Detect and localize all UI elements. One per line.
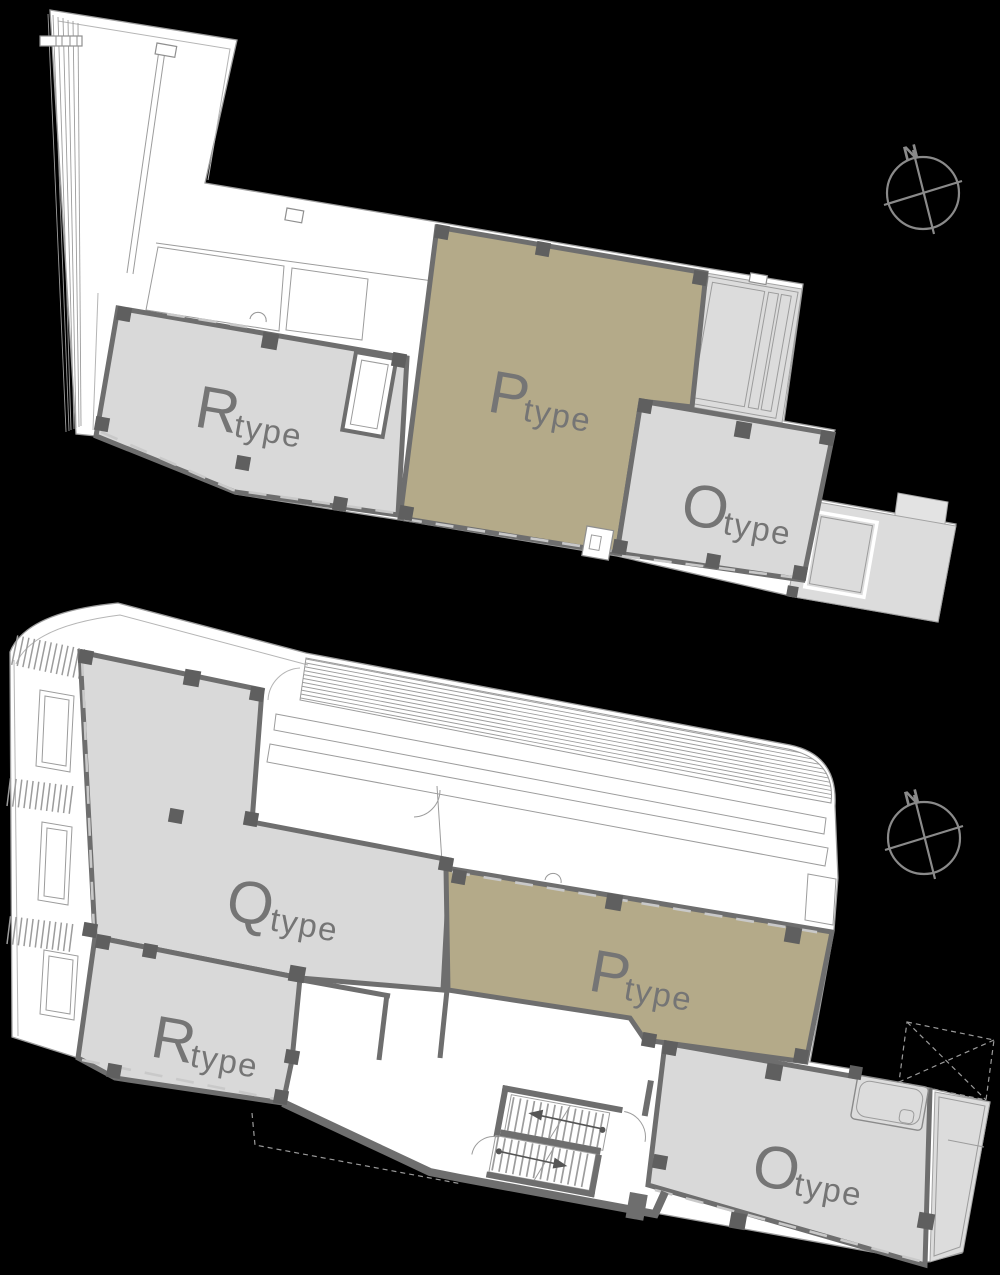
- lower-floor-plan: Q type R type P type O type N: [8, 603, 994, 1265]
- compass-icon: N: [884, 140, 962, 234]
- floorplan-canvas: R type P type O type N: [0, 0, 1000, 1275]
- upper-floor-plan: R type P type O type N: [40, 10, 962, 622]
- vent-box: [40, 36, 82, 46]
- floorplan-drawing: R type P type O type N: [0, 0, 1000, 1275]
- upper-entry-alcove: [582, 526, 614, 560]
- compass-icon: N: [885, 785, 963, 879]
- lower-right-terrace: [930, 1092, 990, 1262]
